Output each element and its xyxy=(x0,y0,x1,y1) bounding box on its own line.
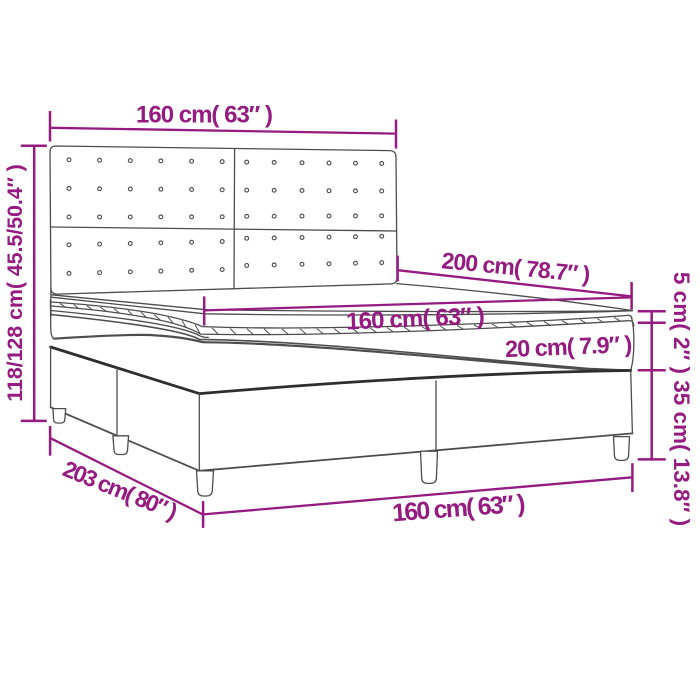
svg-text:118/128 cm( 45.5/50.4″ ): 118/128 cm( 45.5/50.4″ ) xyxy=(3,164,27,401)
svg-text:5 cm( 2″ ) 35 cm( 13.8″ ): 5 cm( 2″ ) 35 cm( 13.8″ ) xyxy=(669,272,694,526)
svg-text:160 cm( 63″ ): 160 cm( 63″ ) xyxy=(136,102,272,129)
svg-text:20 cm( 7.9″ ): 20 cm( 7.9″ ) xyxy=(505,331,632,362)
